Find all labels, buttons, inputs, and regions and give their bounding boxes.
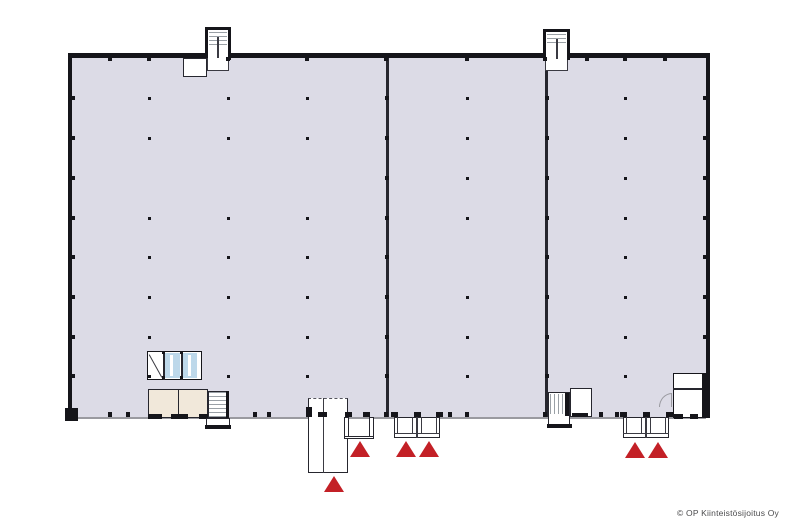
corner-room-wall-seg <box>690 414 698 419</box>
dock-divider <box>416 417 418 438</box>
column-dot <box>227 97 230 100</box>
facade-tick-top <box>108 57 112 61</box>
stair-southwest-treads <box>209 392 227 417</box>
column-dot <box>148 336 151 339</box>
facade-tick-top <box>663 57 667 61</box>
wall-column-mark <box>385 216 389 220</box>
column-dot <box>466 177 469 180</box>
facade-tick-bottom <box>126 412 130 417</box>
wc-hinge <box>162 376 165 379</box>
facade-tick-bottom <box>465 412 469 417</box>
column-dot <box>148 137 151 140</box>
column-dot <box>148 97 151 100</box>
door-leaf <box>671 393 672 407</box>
dock-rail <box>344 417 349 437</box>
column-dot <box>624 296 627 299</box>
entrance-arrow <box>419 441 439 457</box>
facade-tick-top <box>623 57 627 61</box>
wall-column-mark <box>545 295 549 299</box>
column-dot <box>624 177 627 180</box>
wc-hinge <box>180 351 183 354</box>
dock-jamb <box>391 412 398 417</box>
entrance-arrow <box>396 441 416 457</box>
wall-column-mark <box>703 216 707 220</box>
column-dot <box>466 296 469 299</box>
dock-inner-rail <box>436 417 437 433</box>
wall-column-mark <box>545 335 549 339</box>
facade-tick-bottom <box>599 412 603 417</box>
dock-jamb <box>363 412 370 417</box>
dock-divider <box>645 417 647 438</box>
wall-right <box>706 53 710 418</box>
facade-tick-top <box>543 57 547 61</box>
column-dot <box>148 256 151 259</box>
column-dot <box>306 97 309 100</box>
wall-corner-bl <box>65 408 78 421</box>
divider-wall-west <box>386 58 389 417</box>
facade-tick-top <box>465 57 469 61</box>
wall-column-mark <box>545 96 549 100</box>
wall-top <box>68 53 710 58</box>
entrance-arrow <box>648 442 668 458</box>
wall-column-mark <box>545 176 549 180</box>
room-southeast-wall-seg <box>572 413 588 417</box>
facade-tick-top <box>305 57 309 61</box>
column-dot <box>624 137 627 140</box>
dock-base <box>344 436 374 439</box>
stair-tower-north-a-rail <box>217 37 219 58</box>
entrance-arrow <box>324 476 344 492</box>
floor-plan-page: © OP Kiinteistösijoitus Oy <box>0 0 786 524</box>
stair-tower-north-b-rail <box>556 39 558 59</box>
stair-southeast-wall-r <box>565 393 569 416</box>
office-wall-seg <box>171 414 188 419</box>
wall-column-mark <box>545 255 549 259</box>
facade-tick-top <box>226 57 230 61</box>
wall-column-mark <box>71 176 75 180</box>
dock-inner-rail <box>641 417 642 433</box>
dock-jamb <box>666 412 673 417</box>
column-dot <box>148 375 151 378</box>
dock-jamb <box>643 412 650 417</box>
entrance-canopy-jamb <box>306 407 312 417</box>
column-dot <box>306 137 309 140</box>
dock-rail <box>369 417 374 437</box>
facade-tick-bottom <box>108 412 112 417</box>
facade-tick-top <box>585 57 589 61</box>
wall-column-mark <box>703 136 707 140</box>
column-dot <box>227 256 230 259</box>
column-dot <box>227 375 230 378</box>
dock-inner-rail <box>665 417 666 433</box>
wall-column-mark <box>545 136 549 140</box>
column-dot <box>624 336 627 339</box>
facade-tick-bottom <box>448 412 452 417</box>
wall-column-mark <box>71 295 75 299</box>
column-dot <box>466 336 469 339</box>
column-dot <box>624 97 627 100</box>
wall-column-mark <box>71 216 75 220</box>
corner-room-wall-r <box>702 373 707 418</box>
stair-southwest-porch-bottom <box>205 425 231 429</box>
wall-column-mark <box>703 295 707 299</box>
facade-tick-top <box>147 57 151 61</box>
stair-southeast-treads <box>550 394 564 414</box>
column-dot <box>306 336 309 339</box>
column-dot <box>306 375 309 378</box>
wall-column-mark <box>385 255 389 259</box>
dock-inner-rail <box>412 417 413 433</box>
facade-tick-bottom <box>543 412 547 417</box>
dock-step-line <box>394 433 440 434</box>
facade-tick-bottom <box>615 412 619 417</box>
wall-column-mark <box>385 136 389 140</box>
entrance-arrow <box>350 441 370 457</box>
column-dot <box>466 375 469 378</box>
dock-jamb <box>345 412 352 417</box>
dock-jamb <box>436 412 443 417</box>
dock-inner-rail <box>397 417 398 433</box>
wall-column-mark <box>71 374 75 378</box>
wc-stripe-2 <box>188 355 191 376</box>
dock-jamb <box>620 412 627 417</box>
column-dot <box>624 256 627 259</box>
dock-inner-rail <box>421 417 422 433</box>
wall-column-mark <box>385 335 389 339</box>
vestibule-north-a <box>183 58 207 77</box>
dock-inner-rail <box>626 417 627 433</box>
column-dot <box>227 296 230 299</box>
entrance-canopy <box>308 398 348 473</box>
entrance-canopy-divider <box>323 398 324 473</box>
wall-column-mark <box>385 96 389 100</box>
entrance-canopy-tick <box>318 412 327 417</box>
office-wall-seg <box>148 414 162 419</box>
wall-column-mark <box>71 255 75 259</box>
column-dot <box>227 137 230 140</box>
stair-southwest-wall-r <box>226 391 229 419</box>
wall-column-mark <box>703 255 707 259</box>
column-dot <box>148 217 151 220</box>
column-dot <box>624 375 627 378</box>
wc-hinge <box>162 351 165 354</box>
divider-wall-east <box>545 58 548 417</box>
column-dot <box>466 137 469 140</box>
column-dot <box>306 256 309 259</box>
wc-hinge <box>180 376 183 379</box>
wall-column-mark <box>385 295 389 299</box>
wall-column-mark <box>385 374 389 378</box>
wall-column-mark <box>71 136 75 140</box>
wall-left <box>68 53 72 421</box>
column-dot <box>227 336 230 339</box>
copyright-text: © OP Kiinteistösijoitus Oy <box>677 508 779 518</box>
facade-tick-bottom <box>253 412 257 417</box>
column-dot <box>466 97 469 100</box>
column-dot <box>306 217 309 220</box>
dock-jamb <box>414 412 421 417</box>
column-dot <box>466 217 469 220</box>
facade-tick-bottom <box>267 412 271 417</box>
stair-tower-north-a-bottom <box>207 70 229 71</box>
wall-column-mark <box>71 96 75 100</box>
dock-inner-rail <box>650 417 651 433</box>
wall-column-mark <box>703 176 707 180</box>
wall-column-mark <box>71 335 75 339</box>
wall-column-mark <box>545 216 549 220</box>
column-dot <box>148 296 151 299</box>
facade-tick-top <box>384 57 388 61</box>
stair-tower-north-b-bottom <box>545 70 568 71</box>
wall-column-mark <box>703 374 707 378</box>
floor-plan <box>0 0 786 524</box>
wc-stripe-1 <box>170 355 173 376</box>
column-dot <box>306 296 309 299</box>
facade-tick-bottom <box>384 412 388 417</box>
column-dot <box>624 217 627 220</box>
dock-step-line <box>623 433 669 434</box>
wall-column-mark <box>703 96 707 100</box>
corner-room-wall-seg <box>674 414 683 419</box>
wall-column-mark <box>703 335 707 339</box>
entrance-arrow <box>625 442 645 458</box>
stair-southeast-bottom <box>547 424 572 428</box>
wall-column-mark <box>545 374 549 378</box>
column-dot <box>227 217 230 220</box>
wall-column-mark <box>385 176 389 180</box>
